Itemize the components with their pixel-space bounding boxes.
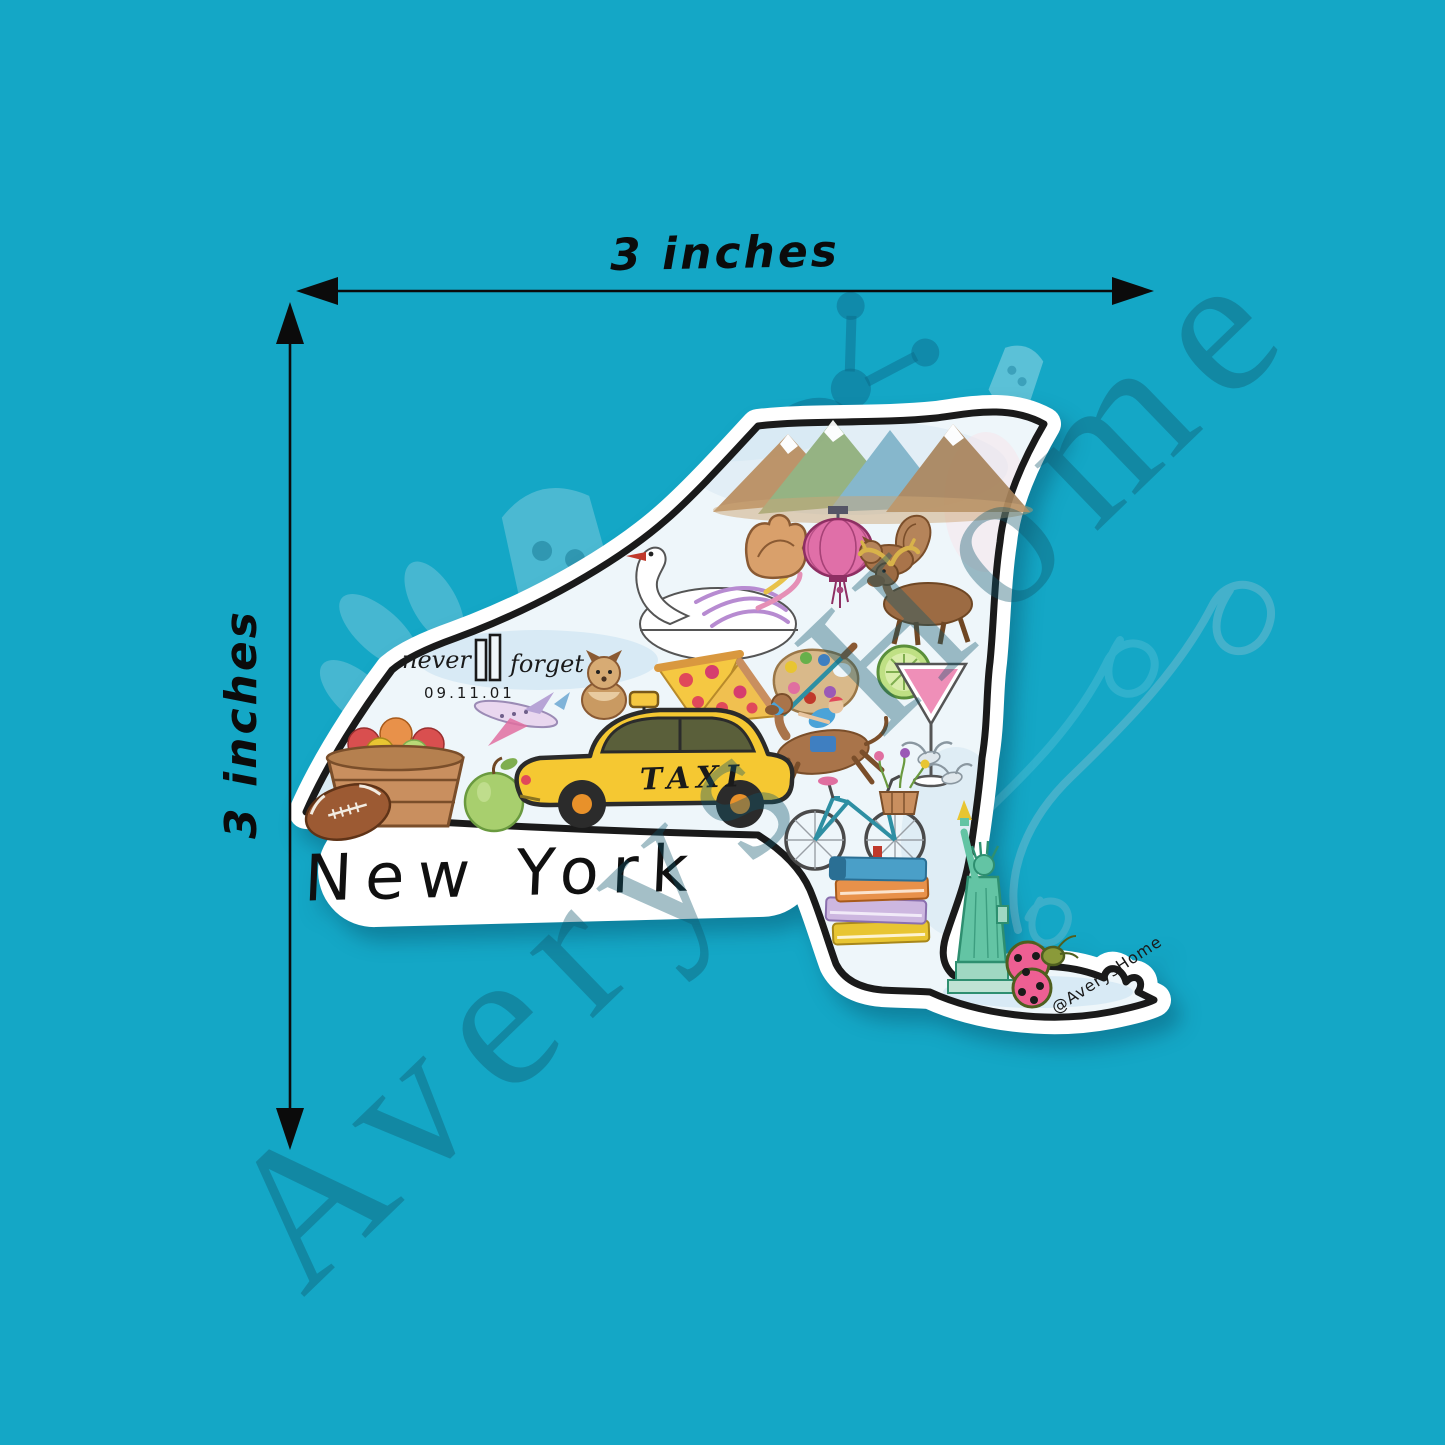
height-dimension-label: 3 inches	[216, 574, 264, 874]
memorial-date: 09.11.01	[424, 684, 515, 702]
width-dimension-label: 3 inches	[555, 225, 896, 282]
product-mockup-canvas: never forget 09.11.01	[0, 0, 1445, 1445]
memorial-never: never	[402, 646, 472, 674]
book-stack-icon	[826, 846, 930, 945]
memorial-forget: forget	[508, 650, 584, 678]
sticker-title: New York	[303, 832, 703, 916]
taxi-lettering: TAXI	[639, 759, 745, 798]
new-york-sticker: never forget 09.11.01	[288, 362, 1168, 1052]
